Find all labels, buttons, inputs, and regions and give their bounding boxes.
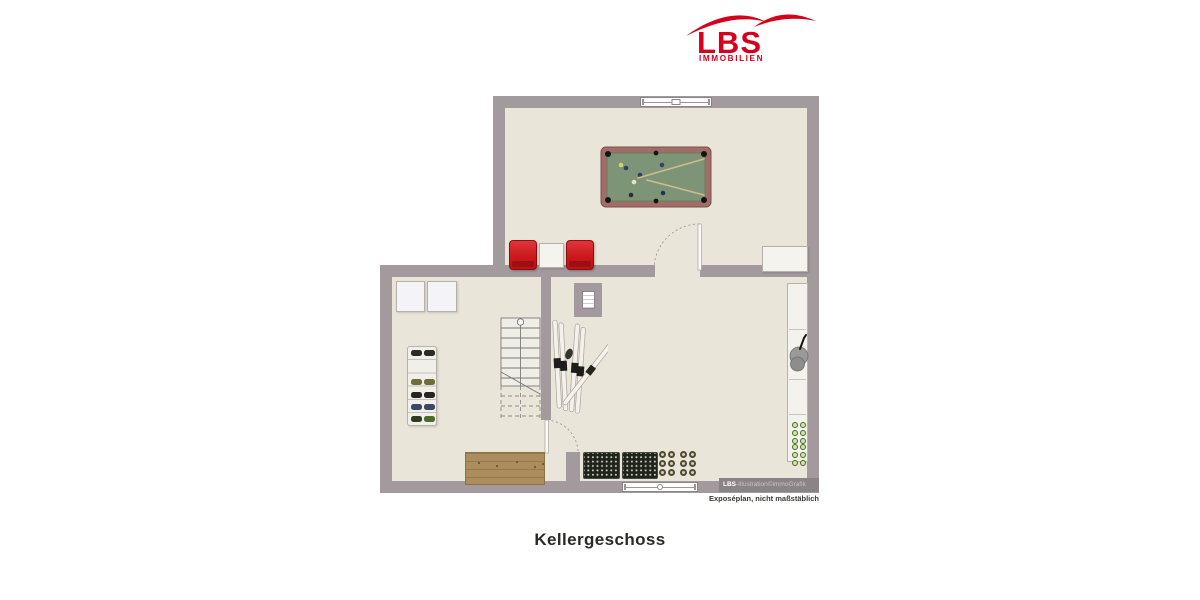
storage-shelf (787, 283, 808, 462)
credit-brand: LBS (723, 481, 736, 488)
shoes-icon (411, 379, 422, 385)
shoes-icon (411, 416, 422, 422)
shoes-icon (424, 392, 435, 398)
window-bottom (622, 482, 698, 492)
shoes-icon (424, 416, 435, 422)
window-end-cap (642, 99, 644, 105)
wall-left-upper (493, 96, 505, 277)
side-table (539, 243, 564, 268)
bottles-group-icon (659, 451, 675, 476)
lbs-logo: LBS IMMOBILIEN (686, 8, 826, 66)
shelf-divider (789, 414, 806, 415)
workbench (465, 452, 545, 485)
preserve-jars-icon (792, 422, 806, 444)
floorplan-page: LBS IMMOBILIEN (0, 0, 1200, 600)
logo-division-text: IMMOBILIEN (699, 54, 764, 63)
skis (546, 316, 608, 416)
dryer (427, 281, 457, 312)
washing-machine (396, 281, 425, 312)
wall-left-lower (380, 265, 392, 493)
shoes-icon (424, 379, 435, 385)
pool-table (600, 146, 712, 208)
shoes-icon (411, 392, 422, 398)
bottle-crate-left (583, 452, 620, 479)
staircase (500, 314, 542, 422)
shoes-icon (424, 350, 435, 356)
chimney-flue-icon (582, 291, 595, 309)
window-handle-icon (672, 99, 681, 105)
illustration-credit-bar: LBS-Illustration©immoGrafik (719, 478, 819, 492)
bottle-crate-right (622, 452, 658, 479)
shoes-icon (424, 404, 435, 410)
pot-icon (788, 332, 809, 376)
window-end-cap (694, 484, 696, 490)
preserve-jars-icon (792, 444, 806, 466)
shoes-icon (411, 350, 422, 356)
scale-disclaimer: Exposéplan, nicht maßstäblich (650, 494, 819, 503)
shelf-divider (789, 379, 806, 380)
bottles-group-icon (680, 451, 696, 476)
armchair-left (509, 240, 537, 270)
armchair-right (566, 240, 594, 270)
door-storage-room (542, 419, 584, 457)
wall-right (807, 96, 819, 493)
window-end-cap (624, 484, 626, 490)
page-title: Kellergeschoss (0, 530, 1200, 550)
shoes-icon (411, 404, 422, 410)
window-top (640, 97, 712, 107)
credit-text: -Illustration©immoGrafik (736, 481, 806, 488)
window-end-cap (708, 99, 710, 105)
window-handle-icon (657, 484, 663, 490)
door-billiard-room (650, 220, 706, 274)
shelf-divider (789, 329, 806, 330)
sideboard (762, 246, 808, 272)
shoe-rack (407, 346, 437, 426)
